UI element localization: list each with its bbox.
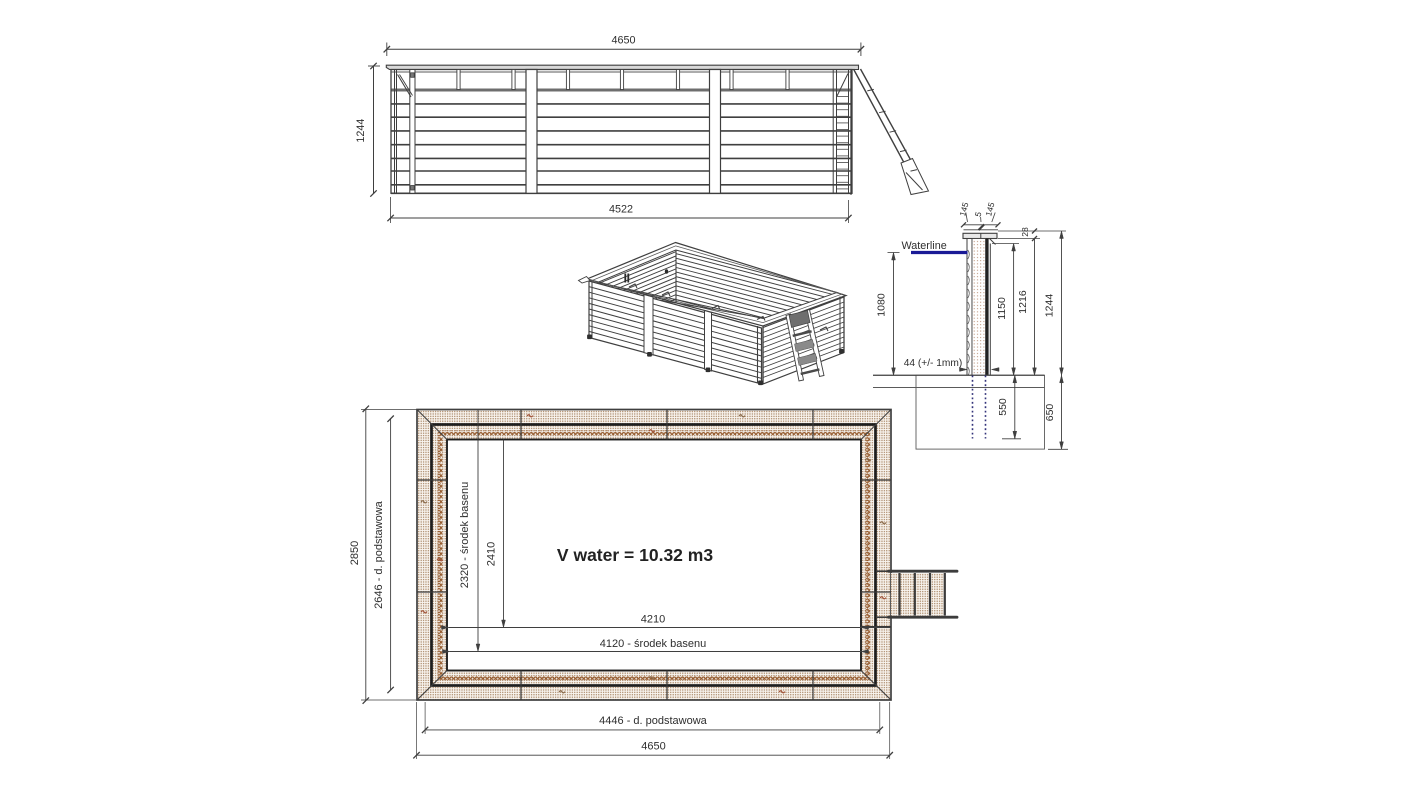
svg-text:2850: 2850: [349, 541, 361, 565]
svg-text:4650: 4650: [611, 35, 635, 47]
svg-text:145: 145: [957, 201, 970, 217]
svg-text:28: 28: [1020, 227, 1030, 237]
svg-text:5: 5: [973, 210, 984, 217]
svg-text:1216: 1216: [1017, 290, 1029, 314]
svg-text:1244: 1244: [355, 119, 367, 143]
svg-text:44 (+/- 1mm): 44 (+/- 1mm): [904, 358, 963, 369]
svg-text:650: 650: [1044, 404, 1056, 422]
svg-text:2410: 2410: [486, 542, 498, 566]
svg-text:2646 - d. podstawowa: 2646 - d. podstawowa: [373, 500, 385, 609]
svg-text:V water = 10.32 m3: V water = 10.32 m3: [557, 545, 713, 565]
svg-text:1244: 1244: [1044, 294, 1056, 318]
svg-text:2320 - środek basenu: 2320 - środek basenu: [459, 482, 471, 588]
svg-text:Waterline: Waterline: [902, 240, 947, 252]
svg-text:4210: 4210: [641, 614, 665, 626]
svg-text:1080: 1080: [876, 293, 888, 317]
svg-text:4120 - środek basenu: 4120 - środek basenu: [600, 638, 706, 650]
svg-text:4446 - d. podstawowa: 4446 - d. podstawowa: [599, 715, 708, 727]
svg-text:1150: 1150: [996, 297, 1008, 320]
svg-text:550: 550: [997, 398, 1009, 416]
svg-text:4650: 4650: [641, 741, 665, 753]
svg-text:4522: 4522: [609, 204, 633, 216]
